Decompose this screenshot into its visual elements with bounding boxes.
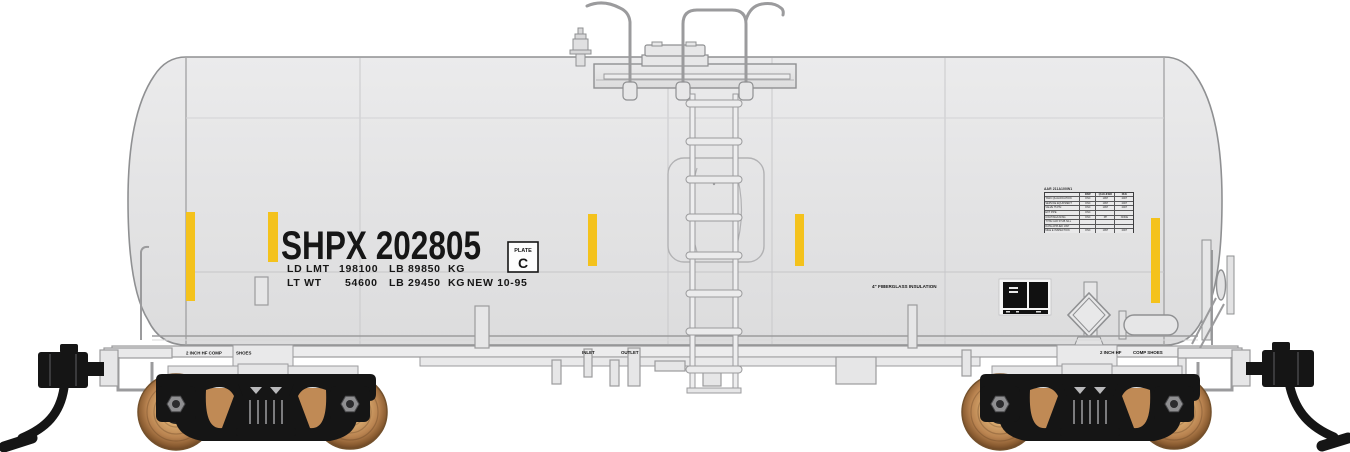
ld-lmt-kg-unit: KG [448, 263, 465, 275]
built-date: NEW 10-95 [467, 277, 528, 289]
truck-springs [236, 384, 296, 436]
yellow-stripe [588, 214, 597, 266]
right-coupler [1232, 342, 1348, 446]
stencil-title: AAR 211A100W1 [1044, 187, 1138, 191]
left-shoe-label-2: SHOES [236, 351, 251, 356]
coupler-box [38, 352, 88, 388]
plate-badge-letter: C [518, 255, 528, 271]
brake-wheel [1217, 270, 1226, 300]
inlet-label: INLET [582, 350, 595, 355]
air-hose-tip [4, 438, 32, 447]
tank-car-illustration: SHPX 202805 LD LMT 198100 LB 89850 KG LT… [0, 0, 1350, 452]
right-shoe-label-2: COMP SHOES [1133, 350, 1163, 355]
qualification-stencil-rows: INSPQUALIFIEDDUETANK QUALIFICATIONONC199… [1044, 192, 1134, 233]
air-hose-tip [1322, 438, 1348, 446]
capacity-stencil-blocks [999, 279, 1051, 315]
plate-c-badge: PLATE C [508, 242, 538, 272]
yellow-stripe [186, 212, 195, 301]
manway-platform [594, 42, 796, 88]
load-limit-row: LD LMT 198100 LB 89850 KG [287, 263, 465, 275]
reporting-mark-text: SHPX 202805 [281, 224, 481, 268]
yellow-stripe [1151, 218, 1160, 303]
lt-wt-lb: 54600 [345, 277, 378, 289]
ld-lmt-kg: 89850 [408, 263, 441, 275]
journal-box [167, 396, 185, 412]
ld-lmt-label: LD LMT [287, 263, 330, 275]
lt-wt-kg: 29450 [408, 277, 441, 289]
right-truck [962, 364, 1211, 450]
outlet-label: OUTLET [621, 350, 639, 355]
ld-lmt-lb: 198100 [339, 263, 378, 275]
center-sill [420, 357, 980, 366]
lt-wt-lb-unit: LB [389, 277, 404, 289]
right-stirrup-step [1198, 357, 1232, 390]
air-hose [1290, 387, 1334, 437]
coupler-box [1262, 350, 1314, 387]
qualification-stencil: AAR 211A100W1 INSPQUALIFIEDDUETANK QUALI… [1044, 187, 1138, 233]
yellow-stripe [268, 212, 278, 262]
yellow-stripe [795, 214, 804, 266]
lt-wt-kg-unit: KG [448, 277, 465, 289]
left-coupler [4, 344, 118, 447]
right-shoe-label-1: 2 INCH HF [1100, 350, 1122, 355]
ld-lmt-lb-unit: LB [389, 263, 404, 275]
air-hose [22, 388, 64, 438]
insulation-note: 4" FIBERGLASS INSULATION [872, 284, 937, 289]
journal-box [341, 396, 359, 412]
plate-badge-top: PLATE [514, 248, 532, 254]
left-truck [138, 364, 387, 450]
left-stirrup-step [118, 357, 152, 390]
lt-wt-label: LT WT [287, 277, 322, 289]
left-shoe-label-1: 2 INCH HF COMP [186, 351, 222, 356]
